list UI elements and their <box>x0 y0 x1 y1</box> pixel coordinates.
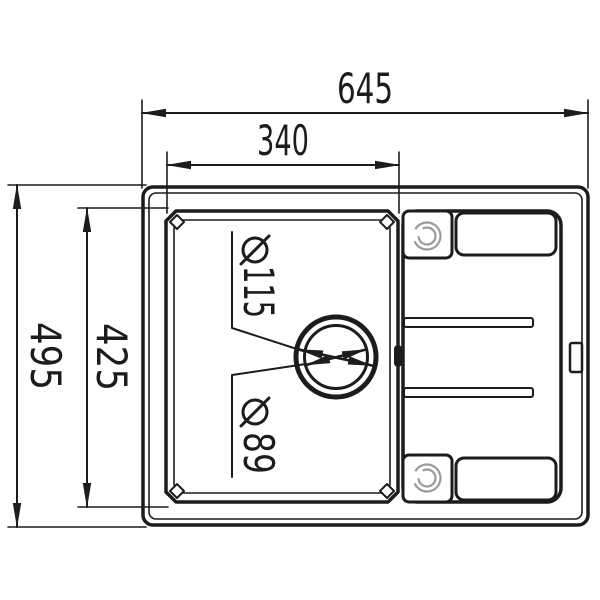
dim-label-drain-outer: 115 <box>234 266 283 318</box>
dim-label-overall-depth: 495 <box>21 322 70 390</box>
bowl-edge-mark <box>394 345 402 367</box>
top-bar <box>456 213 556 255</box>
faucet-cell-bottom <box>403 455 452 502</box>
dim-label-overall-width: 645 <box>337 64 393 113</box>
drain-groove-top <box>404 318 533 327</box>
faucet-cell-top <box>403 211 452 258</box>
rim-notch <box>570 343 582 372</box>
dim-label-drain-inner: 89 <box>234 432 283 474</box>
dim-label-bowl-width: 340 <box>257 116 309 165</box>
technical-drawing: 645 340 495 425 115 89 <box>0 0 600 600</box>
drain-groove-bottom <box>404 388 533 397</box>
bottom-bar <box>456 458 556 500</box>
dim-label-bowl-depth: 425 <box>87 323 136 391</box>
sink-drawing-svg: 645 340 495 425 115 89 <box>0 0 600 600</box>
background <box>0 0 600 600</box>
